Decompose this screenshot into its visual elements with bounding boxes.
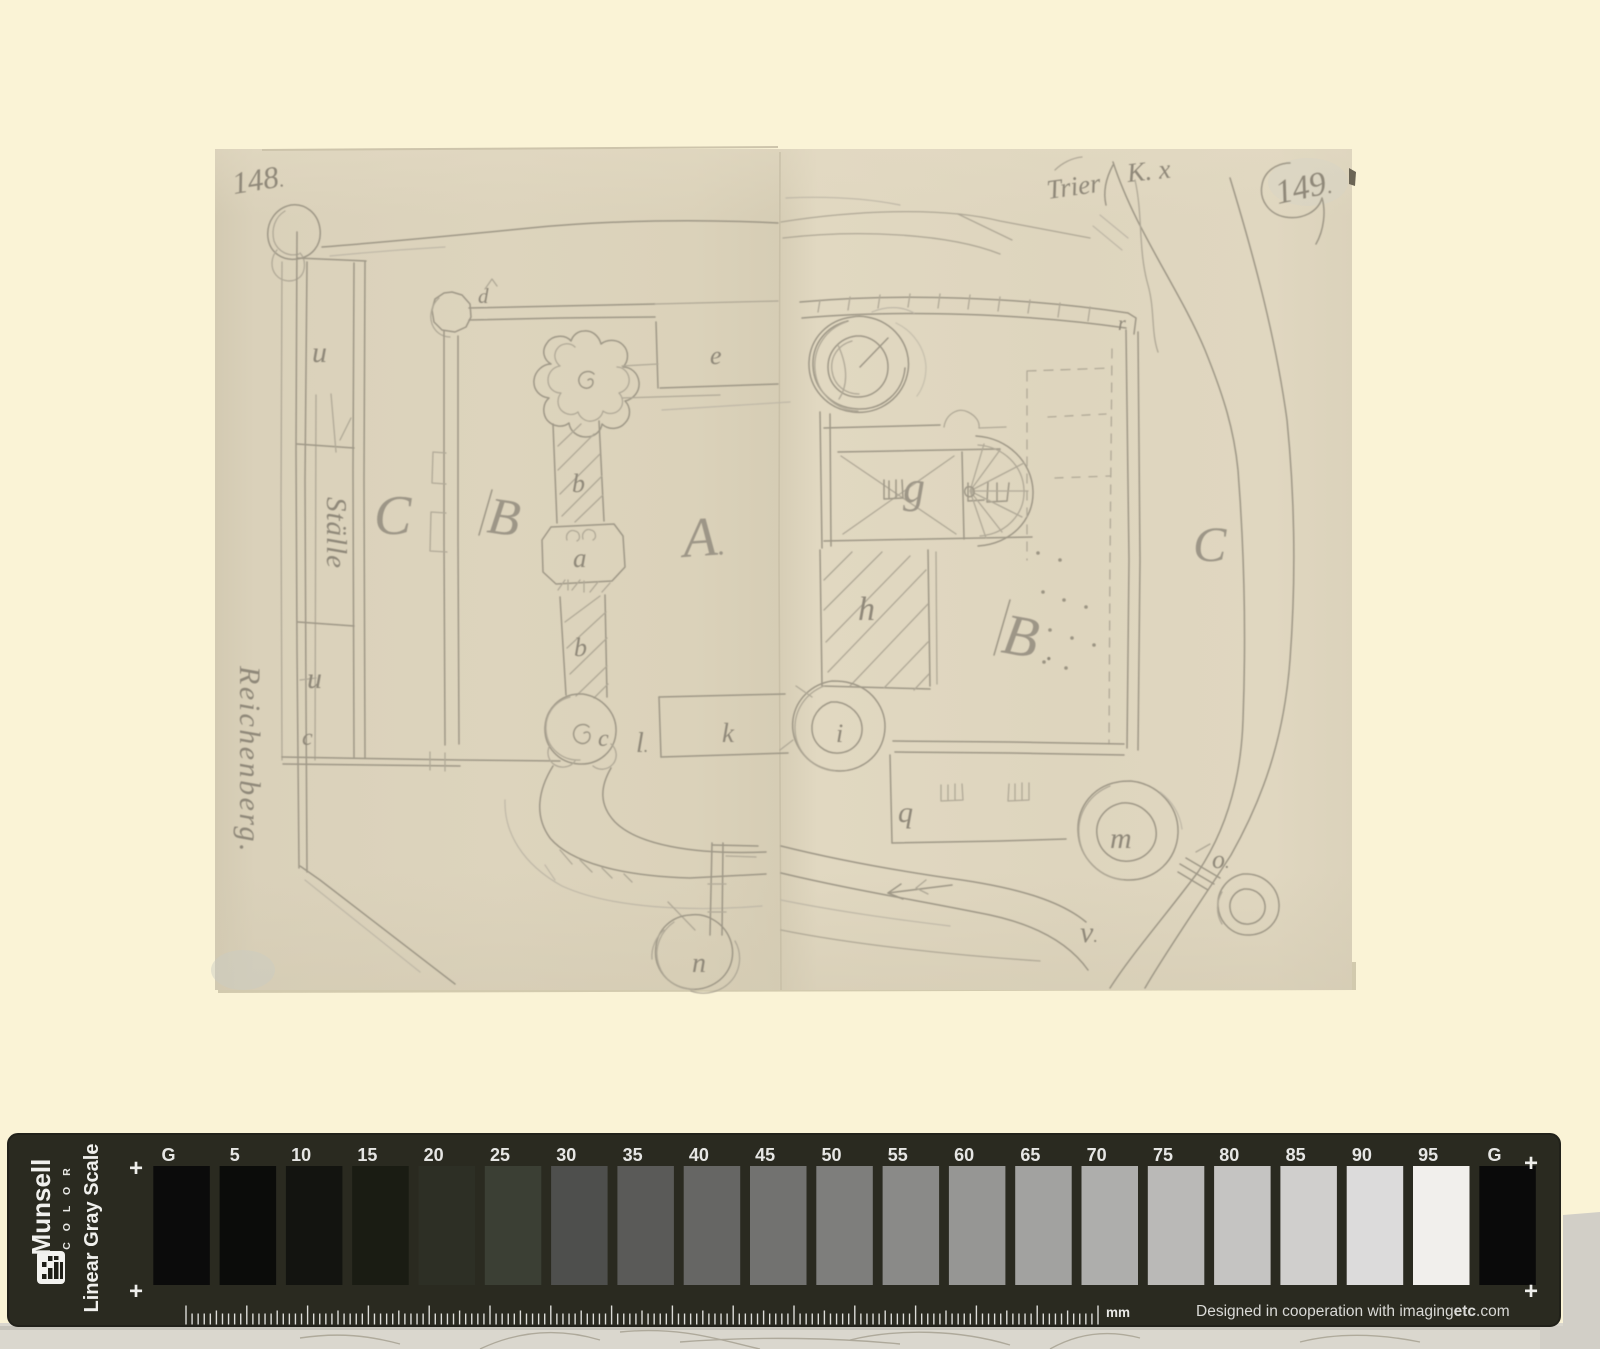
svg-text:.: . bbox=[1046, 636, 1053, 667]
svg-text:C: C bbox=[1193, 516, 1227, 572]
svg-text:c: c bbox=[302, 725, 313, 751]
svg-text:e: e bbox=[710, 341, 722, 370]
svg-text:Munsell: Munsell bbox=[26, 1159, 56, 1256]
svg-text:80: 80 bbox=[1219, 1145, 1239, 1165]
svg-text:G: G bbox=[161, 1145, 175, 1165]
svg-text:h: h bbox=[858, 591, 875, 628]
svg-text:u: u bbox=[307, 662, 322, 695]
svg-text:40: 40 bbox=[689, 1145, 709, 1165]
svg-text:u: u bbox=[312, 336, 327, 369]
svg-text:60: 60 bbox=[954, 1145, 974, 1165]
svg-text:mm: mm bbox=[1106, 1305, 1130, 1320]
svg-text:K. x: K. x bbox=[1124, 154, 1171, 188]
svg-text:G: G bbox=[1487, 1145, 1501, 1165]
svg-text:30: 30 bbox=[556, 1145, 576, 1165]
svg-text:+: + bbox=[129, 1155, 143, 1182]
svg-text:20: 20 bbox=[424, 1145, 444, 1165]
svg-text:k: k bbox=[722, 718, 735, 748]
svg-text:i: i bbox=[836, 719, 843, 748]
svg-text:n: n bbox=[692, 948, 706, 979]
svg-text:70: 70 bbox=[1087, 1145, 1107, 1165]
svg-text:90: 90 bbox=[1352, 1145, 1372, 1165]
svg-text:55: 55 bbox=[888, 1145, 908, 1165]
svg-text:d: d bbox=[478, 284, 489, 308]
svg-text:Designed in cooperation with i: Designed in cooperation with imagingetc.… bbox=[1196, 1303, 1510, 1320]
svg-text:45: 45 bbox=[755, 1145, 775, 1165]
svg-text:85: 85 bbox=[1286, 1145, 1306, 1165]
svg-text:b: b bbox=[572, 469, 585, 498]
svg-text:10: 10 bbox=[291, 1145, 311, 1165]
svg-text:+: + bbox=[1524, 1278, 1538, 1305]
svg-text:15: 15 bbox=[357, 1145, 377, 1165]
svg-text:q: q bbox=[898, 796, 913, 829]
svg-text:75: 75 bbox=[1153, 1145, 1173, 1165]
svg-text:Reichenberg.: Reichenberg. bbox=[233, 665, 266, 854]
svg-text:95: 95 bbox=[1418, 1145, 1438, 1165]
svg-text:+: + bbox=[129, 1278, 143, 1305]
svg-text:65: 65 bbox=[1020, 1145, 1040, 1165]
svg-text:Linear Gray Scale: Linear Gray Scale bbox=[81, 1144, 103, 1313]
svg-text:25: 25 bbox=[490, 1145, 510, 1165]
svg-text:50: 50 bbox=[821, 1145, 841, 1165]
svg-text:a: a bbox=[573, 543, 587, 573]
svg-text:35: 35 bbox=[623, 1145, 643, 1165]
svg-text:g: g bbox=[903, 463, 925, 512]
svg-text:b: b bbox=[574, 633, 587, 662]
svg-text:r: r bbox=[1118, 313, 1126, 335]
svg-text:m: m bbox=[1110, 822, 1132, 855]
svg-text:C: C bbox=[374, 485, 412, 547]
svg-text:Ställe: Ställe bbox=[320, 497, 352, 569]
svg-text:5: 5 bbox=[230, 1145, 240, 1165]
svg-text:C O L O R: C O L O R bbox=[61, 1164, 73, 1249]
svg-text:c: c bbox=[598, 726, 609, 752]
svg-text:+: + bbox=[1524, 1150, 1538, 1177]
